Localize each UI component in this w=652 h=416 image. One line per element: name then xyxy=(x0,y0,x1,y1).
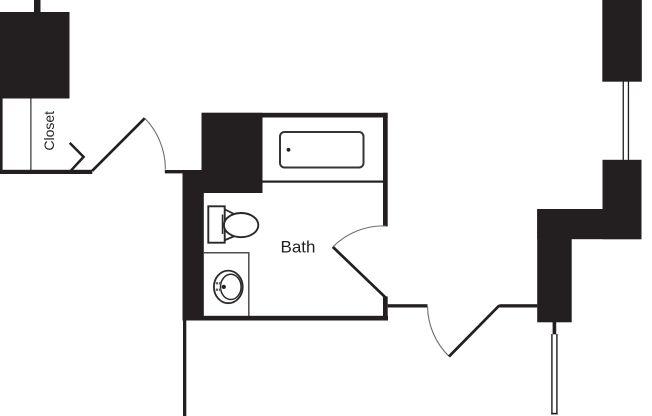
svg-text:Closet: Closet xyxy=(41,111,57,151)
svg-text:Bath: Bath xyxy=(281,238,316,257)
